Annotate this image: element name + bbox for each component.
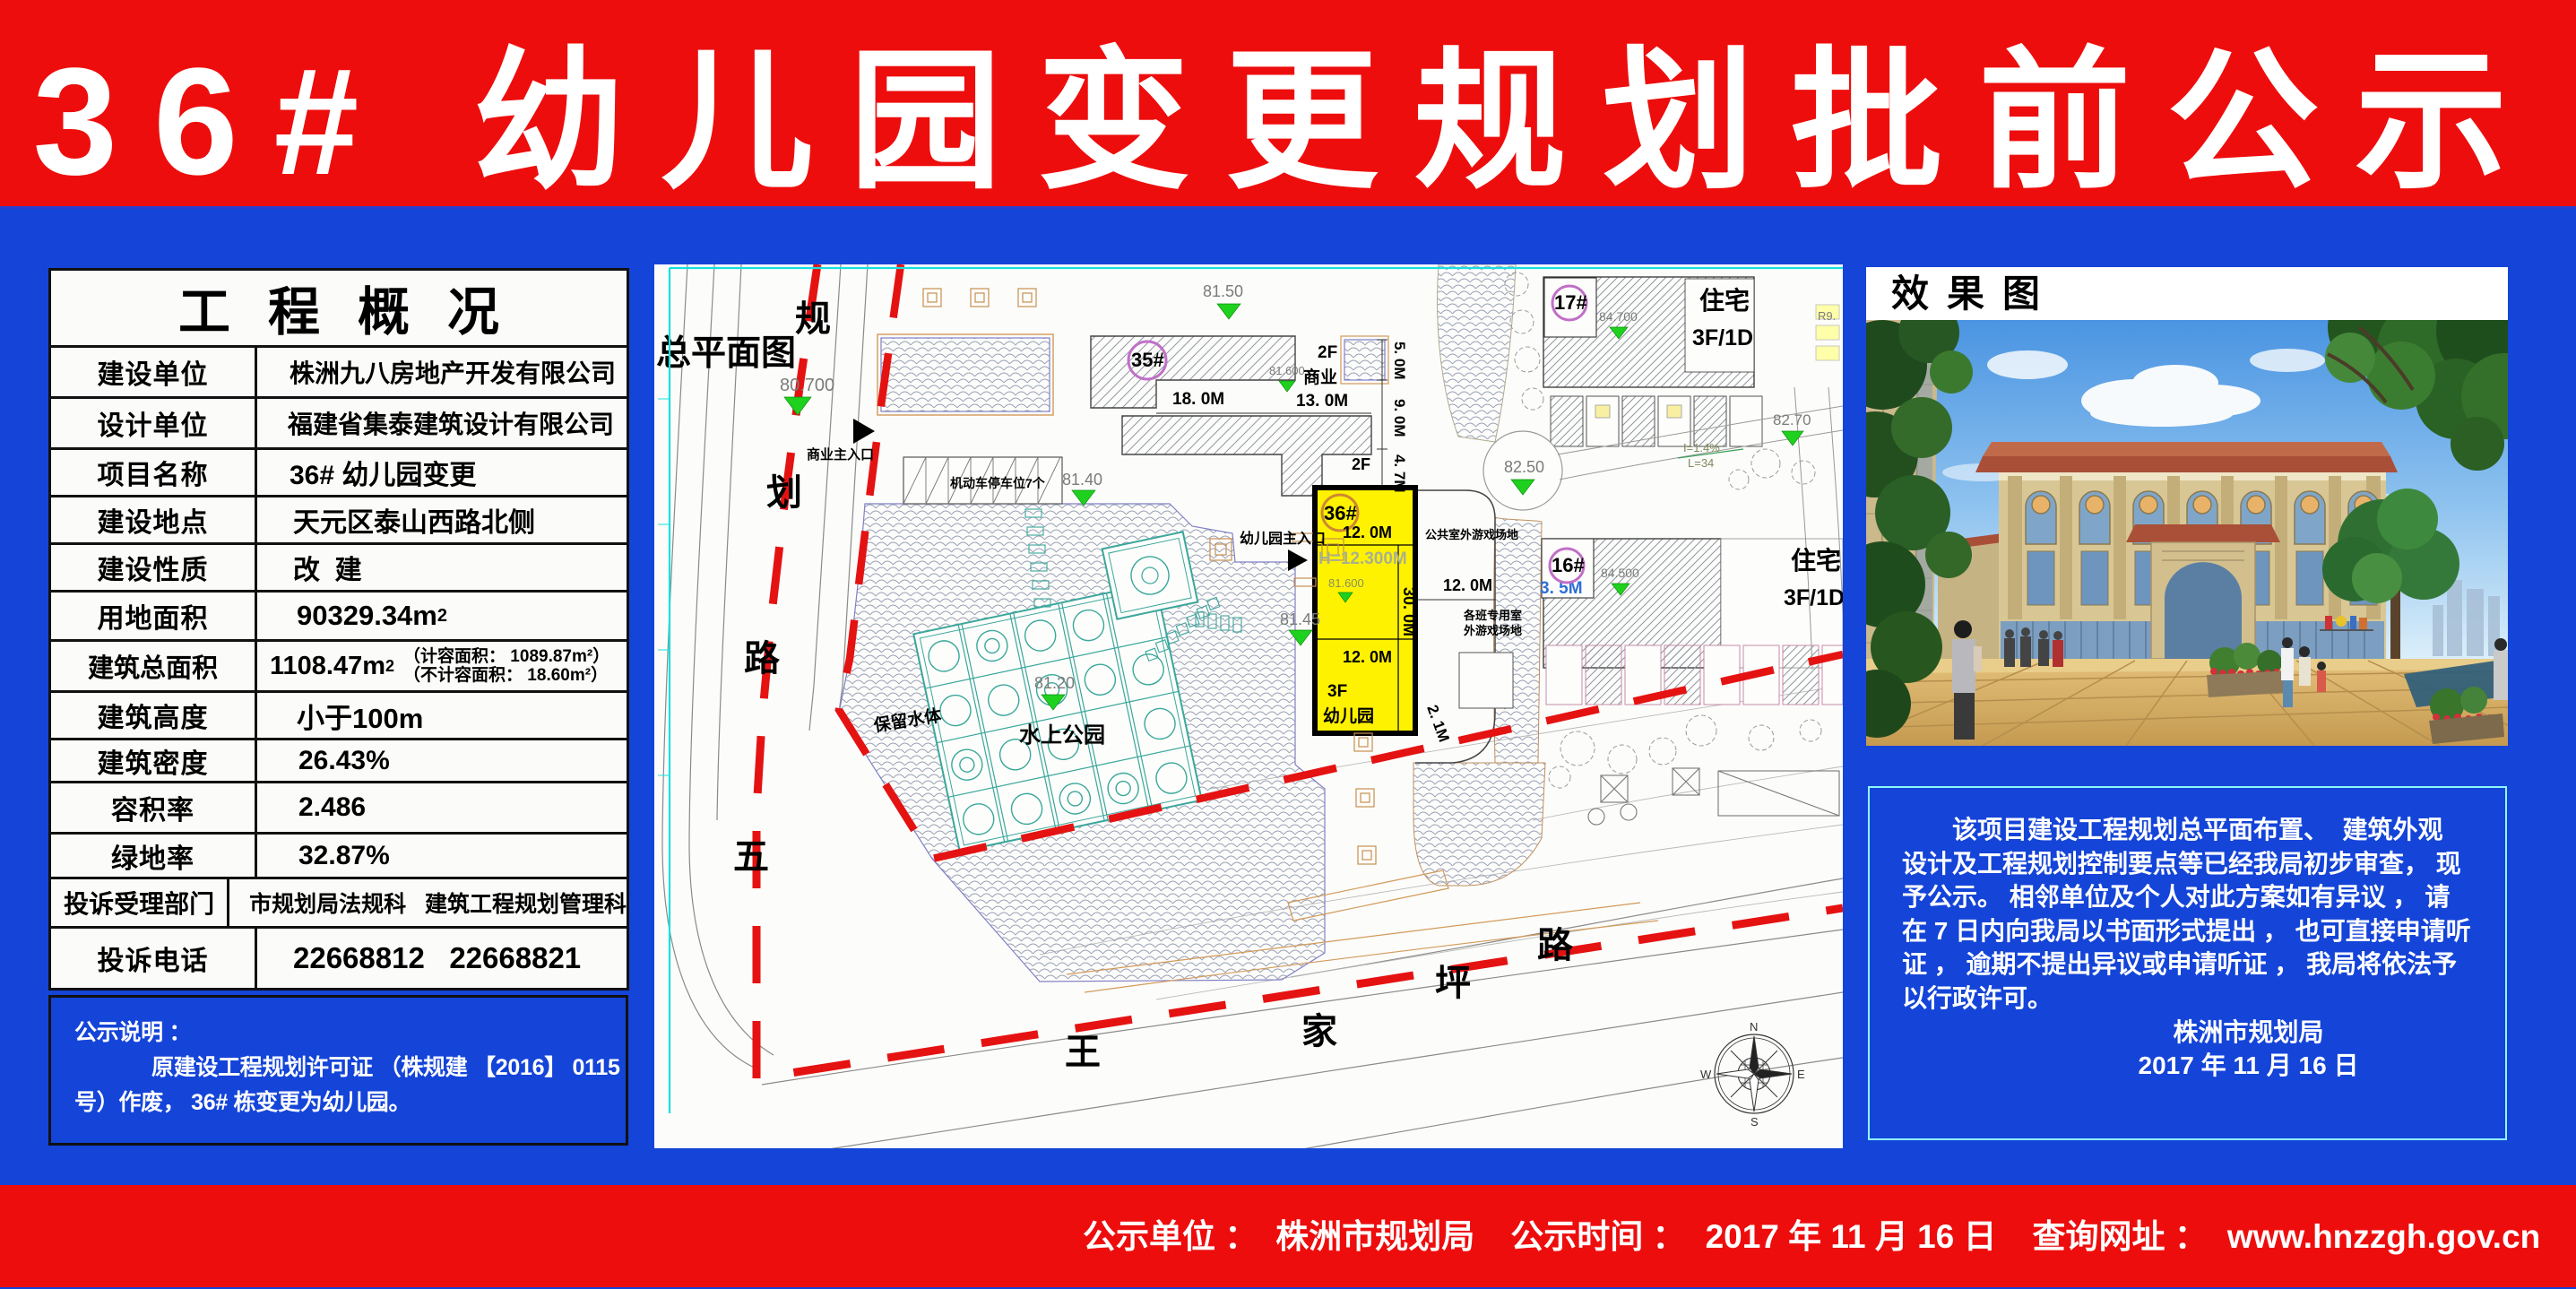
svg-text:住宅: 住宅	[1791, 546, 1841, 575]
svg-text:外游戏场地: 外游戏场地	[1463, 624, 1522, 637]
svg-text:W: W	[1700, 1068, 1712, 1081]
svg-text:L=34: L=34	[1688, 456, 1714, 470]
svg-text:81.50: 81.50	[1203, 282, 1243, 300]
svg-text:公共室外游戏场地: 公共室外游戏场地	[1425, 528, 1518, 541]
svg-text:35#: 35#	[1131, 349, 1164, 371]
svg-text:家: 家	[1301, 1012, 1337, 1051]
svg-text:王: 王	[1065, 1033, 1101, 1072]
svg-text:82.70: 82.70	[1773, 411, 1811, 428]
svg-text:路: 路	[1537, 926, 1574, 965]
svg-text:12. 0M: 12. 0M	[1343, 648, 1392, 666]
svg-text:16#: 16#	[1552, 554, 1585, 576]
svg-text:坪: 坪	[1435, 964, 1471, 1003]
svg-text:幼儿园: 幼儿园	[1323, 705, 1374, 726]
svg-text:3F: 3F	[1327, 682, 1347, 701]
svg-text:9. 0M: 9. 0M	[1391, 399, 1408, 437]
svg-text:五: 五	[733, 837, 769, 877]
svg-text:5. 0M: 5. 0M	[1391, 342, 1408, 380]
svg-text:I=1.4%: I=1.4%	[1683, 441, 1720, 454]
svg-text:总平面图: 总平面图	[656, 334, 796, 373]
svg-text:2F: 2F	[1352, 455, 1370, 473]
svg-text:81.40: 81.40	[1062, 471, 1102, 489]
svg-text:17#: 17#	[1554, 291, 1587, 314]
svg-text:幼儿园主入口: 幼儿园主入口	[1240, 530, 1326, 547]
svg-text:84.500: 84.500	[1601, 566, 1639, 580]
svg-text:机动车停车位7个: 机动车停车位7个	[950, 476, 1046, 490]
svg-text:各班专用室: 各班专用室	[1463, 609, 1522, 622]
svg-text:30. 0M: 30. 0M	[1400, 587, 1418, 636]
svg-text:18. 0M: 18. 0M	[1172, 390, 1224, 409]
svg-text:81.20: 81.20	[1034, 674, 1075, 692]
svg-text:4. 7M: 4. 7M	[1391, 454, 1408, 493]
svg-text:E: E	[1797, 1068, 1805, 1081]
svg-text:12. 0M: 12. 0M	[1343, 523, 1392, 541]
svg-text:商业: 商业	[1303, 367, 1337, 387]
svg-text:2F: 2F	[1318, 343, 1337, 362]
svg-text:R9.: R9.	[1818, 309, 1836, 323]
svg-text:36#: 36#	[1324, 502, 1357, 524]
svg-text:路: 路	[744, 639, 781, 679]
svg-text:H=12.300M: H=12.300M	[1318, 549, 1407, 568]
svg-text:80.700: 80.700	[780, 376, 834, 395]
svg-text:81.600: 81.600	[1328, 576, 1364, 590]
svg-text:81.45: 81.45	[1280, 610, 1320, 628]
svg-text:82.50: 82.50	[1504, 458, 1544, 476]
svg-text:N: N	[1750, 1020, 1758, 1034]
svg-text:84.700: 84.700	[1599, 309, 1638, 324]
svg-text:规: 规	[795, 299, 831, 339]
svg-text:划: 划	[766, 473, 802, 513]
svg-text:S: S	[1750, 1115, 1759, 1129]
svg-text:3F/1D: 3F/1D	[1692, 325, 1753, 350]
svg-text:3F/1D: 3F/1D	[1784, 585, 1843, 610]
svg-text:12. 0M: 12. 0M	[1443, 576, 1492, 594]
svg-text:水上公园: 水上公园	[1019, 723, 1105, 748]
svg-text:13. 0M: 13. 0M	[1296, 392, 1348, 411]
svg-text:住宅: 住宅	[1699, 286, 1750, 315]
svg-text:81.600: 81.600	[1269, 364, 1305, 377]
svg-text:商业主入口: 商业主入口	[807, 446, 874, 463]
